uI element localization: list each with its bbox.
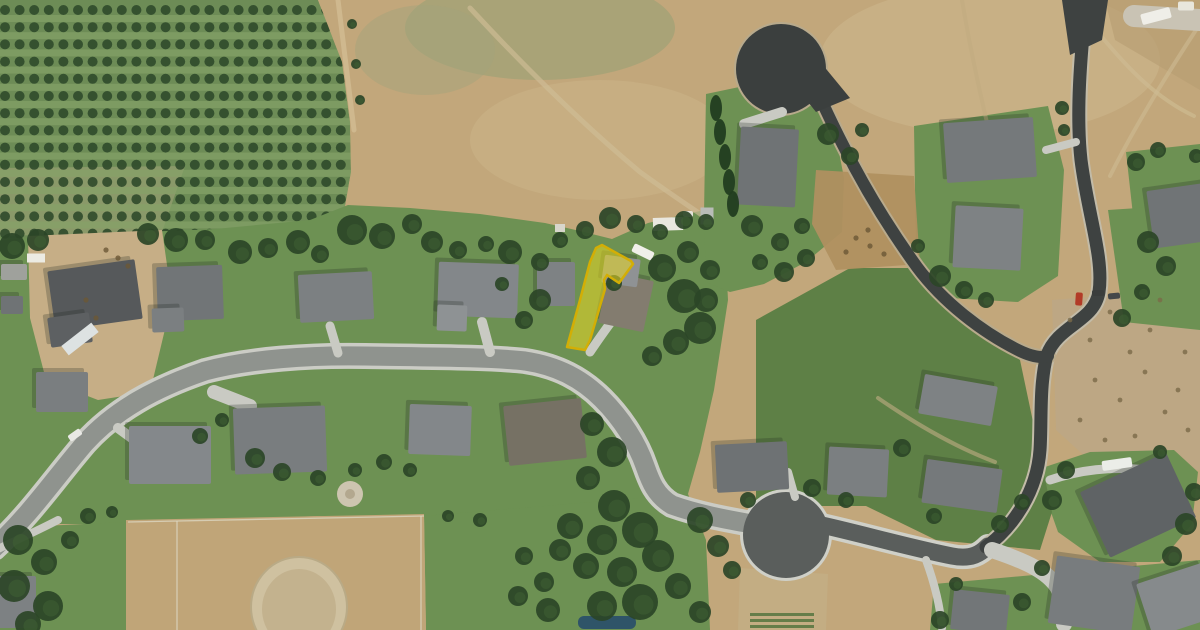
scrub-bush (1103, 438, 1108, 443)
orchard-tree (190, 5, 200, 15)
orchard-tree (0, 74, 10, 84)
shed (27, 254, 45, 263)
orchard-lane (0, 153, 358, 160)
orchard-tree (234, 57, 244, 67)
orchard-tree (161, 39, 171, 49)
tree-canopy-highlight (588, 419, 601, 432)
orchard-tree (117, 125, 127, 135)
tree-canopy-highlight (649, 352, 660, 363)
orchard-tree (219, 74, 229, 84)
orchard-tree (0, 211, 10, 221)
orchard-tree (277, 108, 287, 118)
tree-canopy-highlight (353, 467, 361, 475)
orchard-tree (117, 160, 127, 170)
culdesac-bulb (743, 492, 829, 578)
orchard-tree (73, 39, 83, 49)
house-roof (298, 271, 374, 323)
orchard-tree (29, 57, 39, 67)
orchard-tree (88, 160, 98, 170)
orchard-tree (277, 22, 287, 32)
vehicle (1092, 290, 1104, 296)
orchard-tree (321, 74, 331, 84)
orchard-tree (248, 57, 258, 67)
tree-canopy-highlight (847, 152, 857, 162)
tree-canopy-highlight (695, 515, 709, 529)
orchard-tree (15, 125, 25, 135)
orchard-tree (321, 91, 331, 101)
orchard-tree (307, 177, 317, 187)
orchard-lane (0, 49, 358, 56)
orchard-lane (0, 204, 358, 211)
orchard-tree (88, 125, 98, 135)
tree-canopy-highlight (1119, 314, 1129, 324)
orchard-tree (131, 194, 141, 204)
orchard-tree (88, 57, 98, 67)
tree-canopy-highlight (581, 561, 595, 575)
tree-canopy-highlight (673, 581, 687, 595)
orchard-tree (44, 143, 54, 153)
orchard-tree (161, 125, 171, 135)
orchard-tree (58, 211, 68, 221)
orchard-tree (204, 39, 214, 49)
orchard-tree (219, 39, 229, 49)
orchard-tree (277, 177, 287, 187)
tree-canopy-highlight (597, 600, 614, 617)
orchard-tree (131, 143, 141, 153)
house-roof (952, 205, 1023, 270)
house-roof (1, 296, 23, 314)
tree-canopy-highlight (381, 459, 390, 468)
orchard-tree (175, 74, 185, 84)
orchard-tree (146, 39, 156, 49)
tree-canopy-highlight (43, 600, 60, 617)
orchard-tree (44, 22, 54, 32)
tree-canopy-highlight (597, 534, 614, 551)
orchard-tree (29, 91, 39, 101)
orchard-tree (88, 177, 98, 187)
orchard-lane (0, 67, 358, 74)
tree-canopy-highlight (607, 446, 624, 463)
tree-canopy-highlight (110, 510, 117, 517)
orchard-tree (336, 125, 346, 135)
orchard-tree (190, 160, 200, 170)
scrub-bush (1088, 338, 1093, 343)
orchard-lane (0, 187, 358, 194)
orchard-tree (29, 22, 39, 32)
orchard-tree (336, 108, 346, 118)
tree-canopy-highlight (652, 550, 670, 568)
orchard-tree (204, 125, 214, 135)
orchard-tree (146, 143, 156, 153)
orchard-lane (0, 135, 358, 142)
vehicle (1108, 292, 1120, 299)
orchard-tree (29, 177, 39, 187)
orchard-tree (102, 194, 112, 204)
house-roof (408, 404, 472, 456)
tree-canopy-highlight (777, 238, 787, 248)
tree-canopy-highlight (1139, 289, 1148, 298)
orchard-tree (102, 57, 112, 67)
orchard-tree (161, 160, 171, 170)
tree-canopy-highlight (409, 220, 420, 231)
orchard-tree (88, 39, 98, 49)
orchard-tree (131, 91, 141, 101)
orchard-tree (58, 91, 68, 101)
tree-canopy-highlight (983, 297, 992, 306)
debris (843, 249, 848, 254)
house-roof (943, 117, 1037, 183)
orchard-lane (0, 101, 358, 108)
orchard-tree (277, 91, 287, 101)
tree-canopy-highlight (506, 247, 519, 260)
orchard-tree (15, 22, 25, 32)
orchard-tree (161, 91, 171, 101)
orchard-tree (44, 57, 54, 67)
garden-bed (750, 625, 814, 628)
tree-canopy-highlight (694, 322, 712, 340)
house-roof (715, 441, 789, 493)
orchard-tree (146, 194, 156, 204)
orchard-tree (234, 160, 244, 170)
orchard-tree (102, 143, 112, 153)
tree-canopy-highlight (317, 250, 327, 260)
orchard-tree (190, 211, 200, 221)
orchard-lane (0, 170, 358, 177)
orchard-tree (88, 108, 98, 118)
tree-canopy-highlight (172, 235, 185, 248)
orchard-tree (204, 74, 214, 84)
orchard-tree (73, 74, 83, 84)
orchard-tree (117, 194, 127, 204)
orchard-tree (263, 125, 273, 135)
orchard-tree (307, 39, 317, 49)
orchard-tree (44, 74, 54, 84)
orchard-tree (248, 22, 258, 32)
garden-bed (750, 613, 814, 616)
orchard-tree (131, 57, 141, 67)
tree-canopy-highlight (1039, 565, 1048, 574)
tree-canopy-highlight (541, 578, 552, 589)
orchard-tree (234, 91, 244, 101)
orchard-tree (277, 160, 287, 170)
tree-canopy-highlight (565, 521, 579, 535)
orchard-tree (88, 5, 98, 15)
orchard-tree (131, 39, 141, 49)
orchard-tree (219, 143, 229, 153)
debris (103, 247, 108, 252)
orchard-tree (277, 74, 287, 84)
orchard-tree (204, 22, 214, 32)
tree-canopy-highlight (1019, 598, 1029, 608)
tree-canopy-highlight (1163, 262, 1174, 273)
orchard-tree (204, 194, 214, 204)
tree-canopy-highlight (347, 224, 364, 241)
orchard-tree (263, 211, 273, 221)
orchard-tree (44, 91, 54, 101)
poplar-tree (727, 191, 739, 217)
orchard-tree (307, 143, 317, 153)
orchard-tree (15, 74, 25, 84)
orchard-tree (117, 22, 127, 32)
orchard-tree (146, 22, 156, 32)
house-roof (737, 127, 799, 208)
orchard-tree (102, 5, 112, 15)
orchard-tree (263, 91, 273, 101)
orchard-tree (88, 74, 98, 84)
orchard-tree (263, 194, 273, 204)
orchard-tree (307, 160, 317, 170)
debris (867, 243, 872, 248)
orchard-tree (58, 177, 68, 187)
orchard-tree (102, 39, 112, 49)
tree-canopy-highlight (824, 130, 836, 142)
orchard-tree (204, 57, 214, 67)
orchard-tree (73, 108, 83, 118)
tree-canopy-highlight (657, 262, 672, 277)
orchard-tree (204, 177, 214, 187)
house-roof (827, 446, 889, 497)
orchard-tree (44, 125, 54, 135)
orchard-tree (102, 22, 112, 32)
scrub-bush (1158, 298, 1163, 303)
orchard-tree (102, 177, 112, 187)
green-tint-top-2 (355, 5, 495, 95)
orchard-tree (321, 39, 331, 49)
orchard-tree (190, 177, 200, 187)
orchard-tree (15, 160, 25, 170)
tree-canopy-highlight (197, 433, 206, 442)
orchard-tree (336, 177, 346, 187)
orchard-tree (175, 108, 185, 118)
orchard-tree (219, 160, 229, 170)
orchard-tree (131, 211, 141, 221)
orchard-tree (146, 91, 156, 101)
vehicle (1075, 292, 1083, 305)
orchard-tree (248, 39, 258, 49)
orchard-tree (88, 211, 98, 221)
orchard-tree (248, 108, 258, 118)
orchard-tree (204, 91, 214, 101)
orchard-tree (102, 160, 112, 170)
orchard-tree (175, 211, 185, 221)
orchard-tree (175, 39, 185, 49)
tree-canopy-highlight (678, 289, 697, 308)
tree-canopy-highlight (1158, 449, 1166, 457)
orchard-tree (292, 39, 302, 49)
orchard-tree (58, 143, 68, 153)
tree-canopy-highlight (582, 226, 592, 236)
orchard-tree (336, 91, 346, 101)
tree-canopy-highlight (781, 268, 792, 279)
orchard-tree (219, 5, 229, 15)
tree-canopy-highlight (537, 258, 547, 268)
tree-canopy-highlight (483, 241, 492, 250)
orchard-tree (292, 160, 302, 170)
orchard-tree (248, 5, 258, 15)
orchard-tree (219, 211, 229, 221)
orchard-tree (58, 22, 68, 32)
orchard-tree (321, 125, 331, 135)
house-roof (36, 372, 88, 412)
debris (865, 227, 870, 232)
orchard-tree (307, 74, 317, 84)
tree-canopy-highlight (860, 127, 868, 135)
tree-canopy-highlight (634, 595, 654, 615)
orchard-lane (0, 15, 358, 22)
orchard-tree (15, 143, 25, 153)
orchard-tree (161, 22, 171, 32)
orchard-tree (234, 125, 244, 135)
orchard-tree (277, 125, 287, 135)
orchard-tree (336, 194, 346, 204)
orchard-tree (234, 143, 244, 153)
tree-canopy-highlight (478, 517, 486, 525)
orchard-tree (190, 194, 200, 204)
orchard-tree (117, 108, 127, 118)
orchard-tree (219, 57, 229, 67)
orchard-tree (146, 74, 156, 84)
orchard-tree (73, 57, 83, 67)
orchard-tree (58, 57, 68, 67)
shed (555, 224, 565, 232)
orchard-tree (190, 39, 200, 49)
orchard-tree (321, 57, 331, 67)
tree-canopy-highlight (696, 608, 708, 620)
tree-canopy-highlight (714, 542, 726, 554)
orchard-tree (161, 211, 171, 221)
house-roof (1048, 555, 1141, 630)
orchard-tree (131, 160, 141, 170)
orchard-tree (307, 91, 317, 101)
tree-canopy-highlight (606, 214, 618, 226)
orchard-tree (73, 22, 83, 32)
orchard-tree (88, 194, 98, 204)
orchard-tree (29, 5, 39, 15)
orchard-tree (321, 194, 331, 204)
tree-canopy-highlight (1062, 128, 1069, 135)
orchard-tree (73, 194, 83, 204)
tree-canopy-highlight (899, 444, 909, 454)
tree-canopy-highlight (799, 223, 808, 232)
orchard-tree (263, 39, 273, 49)
orchard-tree (117, 5, 127, 15)
orchard-tree (117, 57, 127, 67)
orchard-tree (263, 5, 273, 15)
orchard-lane (0, 84, 358, 91)
tree-canopy-highlight (236, 247, 249, 260)
orchard-tree (102, 74, 112, 84)
orchard-tree (292, 74, 302, 84)
orchard-tree (146, 57, 156, 67)
tree-canopy-highlight (67, 536, 77, 546)
orchard-tree (248, 74, 258, 84)
orchard-tree (321, 108, 331, 118)
orchard-tree (175, 194, 185, 204)
orchard-tree (248, 177, 258, 187)
tree-canopy-highlight (1019, 499, 1028, 508)
orchard-lane (0, 118, 358, 125)
orchard-tree (277, 194, 287, 204)
poplar-tree (719, 144, 731, 170)
tree-canopy-highlight (931, 513, 940, 522)
map-canvas (0, 0, 1200, 630)
orchard-tree (73, 143, 83, 153)
orchard-tree (263, 22, 273, 32)
orchard-tree (248, 125, 258, 135)
orchard-tree (190, 22, 200, 32)
tree-canopy-highlight (408, 467, 416, 475)
tree-canopy-highlight (500, 281, 508, 289)
orchard-tree (204, 143, 214, 153)
orchard-tree (204, 160, 214, 170)
orchard-tree (117, 177, 127, 187)
orchard-tree (175, 5, 185, 15)
tree-canopy-highlight (521, 552, 531, 562)
orchard-tree (0, 91, 10, 101)
orchard-tree (15, 177, 25, 187)
tree-canopy-highlight (1063, 466, 1073, 476)
orchard-tree (29, 125, 39, 135)
tree-canopy-highlight (803, 254, 813, 264)
tree-canopy-highlight (315, 475, 324, 484)
orchard-tree (248, 160, 258, 170)
tree-canopy-highlight (608, 500, 626, 518)
orchard-tree (0, 22, 10, 32)
orchard-tree (292, 143, 302, 153)
orchard-tree (204, 5, 214, 15)
scrub-bush (1163, 410, 1168, 415)
orchard-tree (117, 143, 127, 153)
orchard-tree (146, 125, 156, 135)
tree-canopy-highlight (1060, 105, 1068, 113)
tree-canopy-highlight (34, 236, 46, 248)
tree-canopy-highlight (13, 534, 30, 551)
scrub-bush (1108, 310, 1113, 315)
orchard-tree (277, 57, 287, 67)
orchard-tree (58, 5, 68, 15)
orchard-tree (29, 74, 39, 84)
orchard-tree (234, 177, 244, 187)
orchard-tree (44, 5, 54, 15)
tree-canopy-highlight (7, 241, 21, 255)
orchard-tree (190, 91, 200, 101)
tree-canopy-highlight (707, 266, 718, 277)
orchard-tree (161, 194, 171, 204)
orchard-tree (102, 125, 112, 135)
orchard-tree (219, 194, 229, 204)
tree-canopy-highlight (936, 272, 948, 284)
orchard-tree (15, 108, 25, 118)
orchard-tree (190, 57, 200, 67)
house-roof (503, 398, 587, 466)
orchard-tree (234, 39, 244, 49)
tree-canopy-highlight (681, 216, 691, 226)
orchard-tree (117, 39, 127, 49)
orchard-tree (219, 177, 229, 187)
orchard-tree (88, 22, 98, 32)
orchard-tree (292, 194, 302, 204)
orchard-tree (263, 177, 273, 187)
orchard-tree (29, 194, 39, 204)
tree-canopy-highlight (1169, 552, 1180, 563)
orchard-tree (292, 125, 302, 135)
orchard-tree (277, 5, 287, 15)
orchard-tree (248, 91, 258, 101)
orchard-tree (263, 74, 273, 84)
orchard-tree (204, 108, 214, 118)
tree-canopy-highlight (294, 237, 307, 250)
orchard-tree (336, 143, 346, 153)
